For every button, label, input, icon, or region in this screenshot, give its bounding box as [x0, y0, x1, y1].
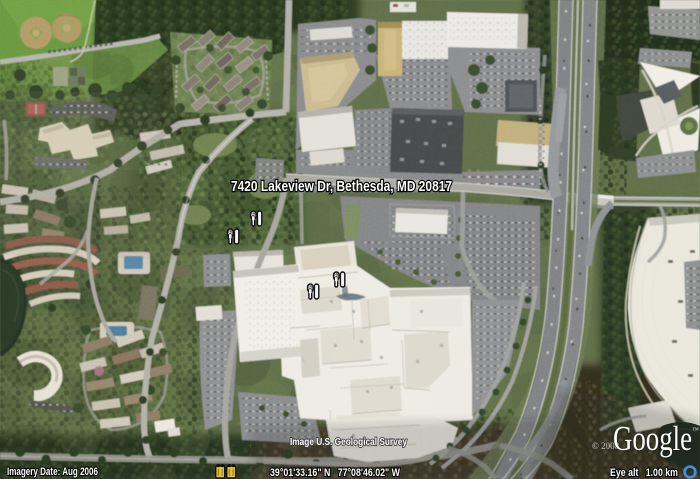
svg-text:39°01'33.16" N 77°08'46.02": 39°01'33.16" N 77°08'46.02" W	[270, 467, 400, 479]
svg-text:™: ™	[692, 426, 699, 434]
svg-text:Eye alt 1.00 km: Eye alt 1.00 km	[610, 467, 678, 479]
svg-text:7420 Lakeview Dr, Bethesda, MD: 7420 Lakeview Dr, Bethesda, MD 20817	[231, 179, 452, 195]
svg-text:Google: Google	[613, 419, 692, 458]
svg-text:Imagery Date: Aug 2006: Imagery Date: Aug 2006	[7, 466, 98, 478]
svg-text:Image U.S. Geological Survey: Image U.S. Geological Survey	[290, 436, 407, 448]
